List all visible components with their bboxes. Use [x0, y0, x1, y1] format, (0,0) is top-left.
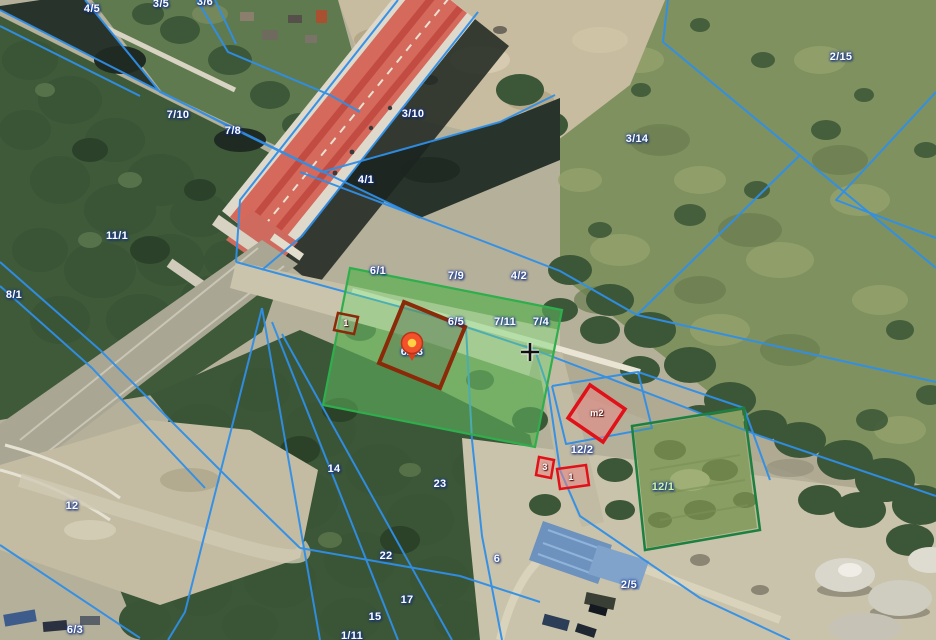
parcel-label-6-13: 6/13 [401, 346, 424, 358]
parcel-label-3-6: 3/6 [197, 0, 213, 8]
parcel-label-4-5: 4/5 [84, 3, 100, 15]
parcel-label-4-2: 4/2 [511, 270, 527, 282]
parcel-label-7-11: 7/11 [494, 316, 516, 328]
parcel-label-23: 23 [434, 478, 447, 490]
parcel-label-7-8: 7/8 [225, 125, 241, 137]
parcel-label-6-5: 6/5 [448, 316, 464, 328]
parcel-label-3-10: 3/10 [402, 108, 425, 120]
parcel-label-12: 12 [66, 500, 79, 512]
parcel-label-6-3: 6/3 [67, 624, 83, 636]
parcel-label-7-10: 7/10 [167, 109, 190, 121]
parcel-label-2-5: 2/5 [621, 579, 637, 591]
building-label-m2: m2 [590, 408, 604, 418]
parcel-label-2-15: 2/15 [830, 51, 853, 63]
parcel-label-12-2: 12/2 [571, 444, 594, 456]
parcel-label-17: 17 [401, 594, 414, 606]
parcel-label-12-1: 12/1 [652, 481, 675, 493]
building-label-3: 3 [542, 462, 547, 472]
parcel-label-11-1: 11/1 [106, 230, 128, 242]
parcel-label-15: 15 [369, 611, 382, 623]
parcel-label-4-1: 4/1 [358, 174, 374, 186]
parcel-label-1-11: 1/11 [341, 630, 363, 640]
building-label-1: 1 [343, 318, 348, 328]
parcel-labels-layer: 4/53/53/67/107/83/104/111/18/12/153/146/… [0, 0, 936, 640]
parcel-label-7-4: 7/4 [533, 316, 549, 328]
parcel-label-14: 14 [328, 463, 341, 475]
parcel-label-3-14: 3/14 [626, 133, 649, 145]
parcel-label-3-5: 3/5 [153, 0, 169, 10]
map-viewport[interactable]: 4/53/53/67/107/83/104/111/18/12/153/146/… [0, 0, 936, 640]
parcel-label-6-1: 6/1 [370, 265, 386, 277]
parcel-label-6: 6 [494, 553, 500, 565]
parcel-label-8-1: 8/1 [6, 289, 22, 301]
parcel-label-7-9: 7/9 [448, 270, 464, 282]
building-label-1: 1 [568, 472, 573, 482]
parcel-label-22: 22 [380, 550, 393, 562]
